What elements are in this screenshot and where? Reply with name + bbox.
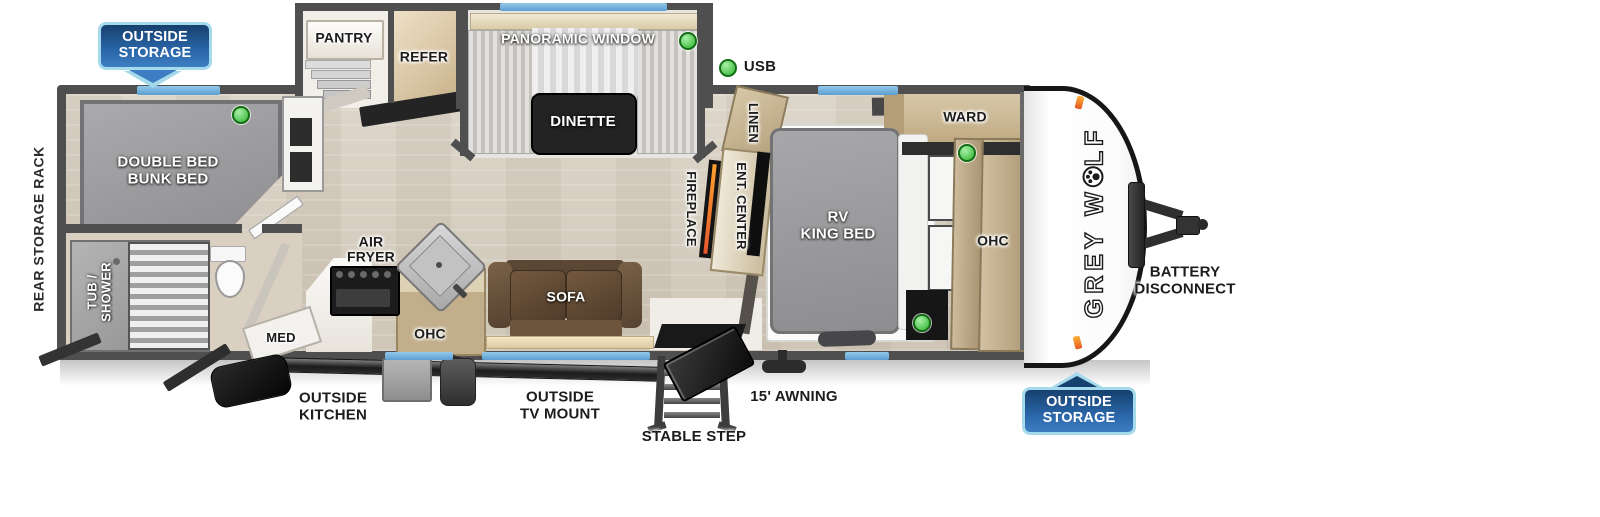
label-outside-kitchen: OUTSIDE KITCHEN (299, 391, 367, 424)
label-ent-center: ENT. CENTER (734, 162, 748, 249)
bunk-locator-dot (232, 106, 250, 124)
label-awning: 15' AWNING (750, 389, 838, 406)
label-refer: REFER (400, 49, 448, 64)
label-tub-shower: TUB / SHOWER (86, 262, 115, 322)
label-outside-tv-mount: OUTSIDE TV MOUNT (520, 390, 600, 423)
floorplan-canvas: PANTRY REFER PANORAMIC WINDOW DINETTE DO… (0, 0, 1600, 517)
label-rear-storage-rack: REAR STORAGE RACK (31, 146, 46, 311)
pantry-shelf-step-2 (311, 70, 371, 79)
pantry-shelf-step-1 (305, 60, 371, 69)
label-rv-king-bed: RV KING BED (801, 210, 876, 243)
hitch-bracket (1128, 182, 1145, 268)
sofa-front-ledge (486, 336, 654, 349)
window-sofa-bottom (482, 352, 650, 360)
bunk-wardrobe-slot-1 (290, 118, 312, 146)
bath-divider-wall-left (66, 224, 242, 233)
dinette-bench-right (637, 30, 703, 154)
label-panoramic-window: PANORAMIC WINDOW (501, 31, 655, 46)
label-battery-disconnect: BATTERY DISCONNECT (1134, 265, 1235, 298)
bath-divider-wall-right (262, 224, 302, 233)
label-med: MED (266, 331, 296, 345)
panoramic-locator-dot (679, 32, 697, 50)
label-double-bed-bunk-bed: DOUBLE BED BUNK BED (117, 155, 218, 188)
window-dinette-slide-top (500, 3, 667, 11)
grey-wolf-logo-suffix: LF (1081, 126, 1109, 167)
label-pantry: PANTRY (315, 30, 372, 45)
ward-locator-dot (958, 144, 976, 162)
stable-step-rung-4 (664, 412, 720, 418)
label-fireplace: FIREPLACE (684, 171, 698, 246)
outside-storage-banner-bottom-body: OUTSIDE STORAGE (1022, 387, 1136, 435)
shower-door-striped (128, 242, 210, 350)
window-bedroom-top (818, 86, 898, 95)
sofa-arm-left (488, 262, 512, 328)
outside-storage-banner-top-body: OUTSIDE STORAGE (98, 22, 212, 70)
dinette-slide-right-wall (697, 10, 705, 158)
bed-foot-bench (818, 330, 876, 347)
outside-kitchen-box-gray (382, 358, 432, 402)
outside-storage-banner-top-point-inner (129, 70, 177, 83)
sink-drain-dot (436, 262, 442, 268)
label-ward: WARD (943, 109, 987, 124)
grey-wolf-logo: GREY WLF (1081, 126, 1110, 319)
dinette-bench-left (468, 30, 534, 154)
paw-print-icon (1083, 166, 1104, 187)
oven-window (336, 289, 390, 307)
outside-kitchen-box-dark (440, 358, 476, 406)
window-kitchen-bottom (385, 352, 453, 360)
bunk-wardrobe-slot-2 (290, 152, 312, 182)
label-usb: USB (744, 59, 776, 76)
usb-locator-dot (719, 59, 737, 77)
entry-locator-dot (913, 314, 931, 332)
dinette-slide-left-wall (460, 10, 468, 156)
awning-bracket-right-stub (778, 350, 787, 364)
grey-wolf-logo-prefix: GREY W (1081, 187, 1109, 318)
window-bedroom-bottom (845, 352, 889, 360)
label-stable-step: STABLE STEP (642, 429, 746, 446)
label-air-fryer: AIR FRYER (347, 235, 395, 266)
hitch-coupler-knob (1197, 219, 1208, 230)
label-bedroom-ohc: OHC (977, 233, 1009, 248)
label-linen: LINEN (746, 103, 760, 143)
pantry-refer-divider-wall (388, 11, 394, 103)
label-sofa: SOFA (547, 289, 586, 304)
outside-storage-banner-top: OUTSIDE STORAGE (98, 22, 214, 70)
label-kitchen-ohc: OHC (414, 326, 446, 341)
stove-knobs (336, 271, 343, 278)
stable-step-rung-3 (664, 398, 720, 404)
outside-storage-banner-bottom: OUTSIDE STORAGE (1022, 372, 1138, 435)
label-dinette: DINETTE (550, 114, 616, 131)
